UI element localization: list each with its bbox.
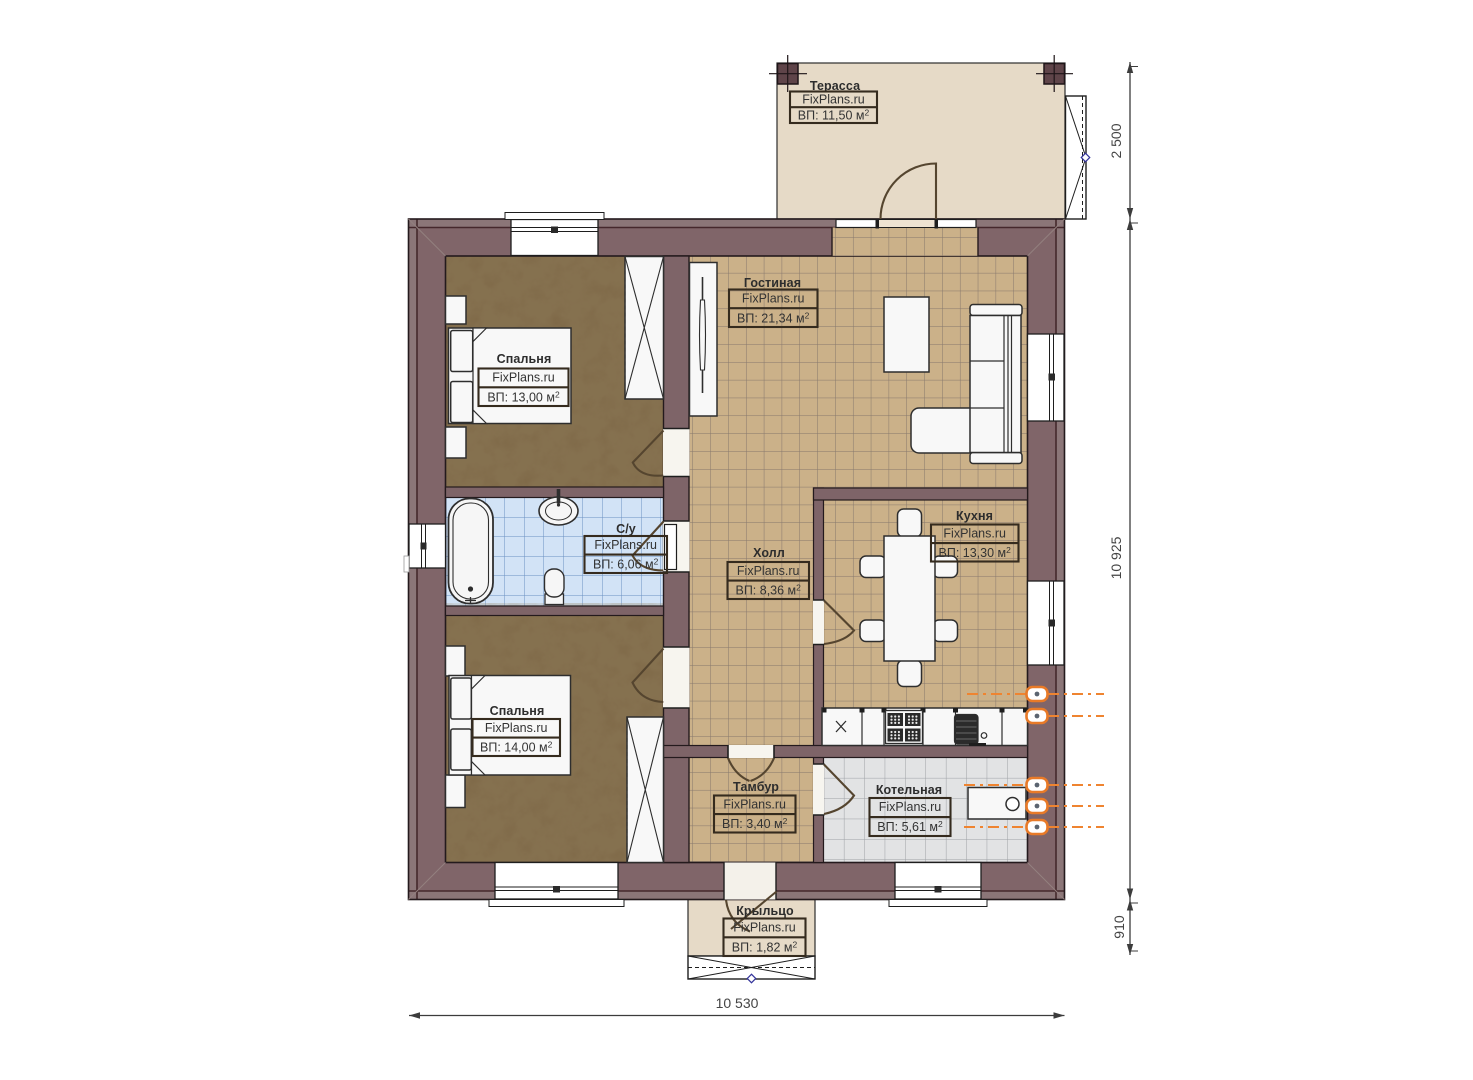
svg-text:ВП: 13,30 м2: ВП: 13,30 м2 [939, 545, 1012, 560]
svg-text:FixPlans.ru: FixPlans.ru [737, 564, 800, 578]
svg-text:FixPlans.ru: FixPlans.ru [485, 721, 548, 735]
svg-text:10 925: 10 925 [1108, 536, 1124, 579]
svg-text:Гостиная: Гостиная [744, 276, 801, 290]
svg-text:ВП: 13,00 м2: ВП: 13,00 м2 [487, 390, 560, 405]
svg-text:ВП: 5,61 м2: ВП: 5,61 м2 [877, 819, 943, 834]
svg-text:FixPlans.ru: FixPlans.ru [723, 798, 786, 812]
svg-text:FixPlans.ru: FixPlans.ru [492, 371, 555, 385]
svg-text:Котельная: Котельная [876, 783, 942, 797]
svg-text:С/у: С/у [616, 522, 636, 536]
svg-text:Кухня: Кухня [956, 509, 993, 523]
svg-text:ВП: 14,00 м2: ВП: 14,00 м2 [480, 740, 553, 755]
svg-text:FixPlans.ru: FixPlans.ru [879, 800, 942, 814]
svg-text:ВП: 11,50 м2: ВП: 11,50 м2 [798, 108, 870, 123]
svg-text:FixPlans.ru: FixPlans.ru [594, 538, 657, 552]
svg-text:910: 910 [1111, 915, 1127, 939]
svg-text:ВП: 1,82 м2: ВП: 1,82 м2 [732, 940, 798, 955]
svg-text:Спальня: Спальня [490, 704, 545, 718]
svg-text:Тамбур: Тамбур [733, 780, 779, 794]
svg-text:ВП: 8,36 м2: ВП: 8,36 м2 [735, 583, 801, 598]
svg-text:10 530: 10 530 [716, 995, 759, 1011]
svg-text:2 500: 2 500 [1108, 123, 1124, 158]
svg-text:FixPlans.ru: FixPlans.ru [733, 921, 796, 935]
svg-text:Крыльцо: Крыльцо [736, 904, 794, 918]
svg-text:ВП: 6,06 м2: ВП: 6,06 м2 [593, 557, 659, 572]
svg-text:Спальня: Спальня [497, 352, 552, 366]
svg-text:ВП: 3,40 м2: ВП: 3,40 м2 [722, 816, 788, 831]
svg-text:ВП: 21,34 м2: ВП: 21,34 м2 [737, 311, 810, 326]
svg-text:FixPlans.ru: FixPlans.ru [742, 292, 805, 306]
svg-text:FixPlans.ru: FixPlans.ru [802, 93, 865, 107]
svg-text:FixPlans.ru: FixPlans.ru [943, 527, 1006, 541]
svg-text:Холл: Холл [753, 546, 785, 560]
